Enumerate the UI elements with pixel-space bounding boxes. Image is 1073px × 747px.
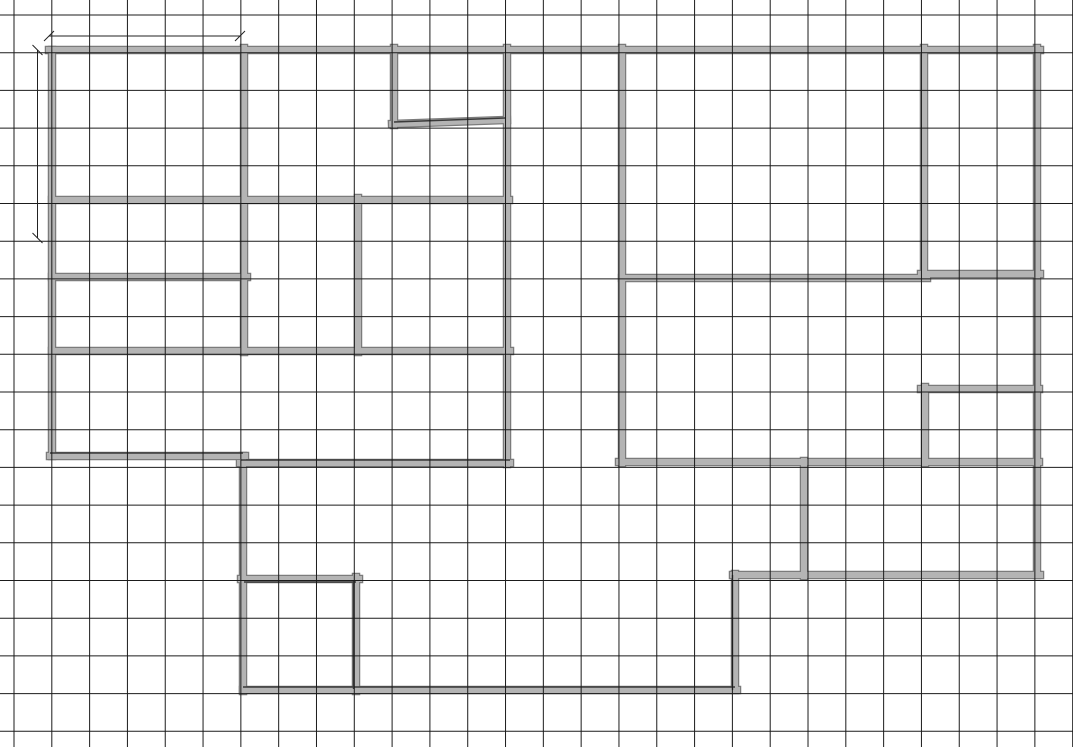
floor-plan-canvas [0,0,1073,747]
floorplan-page [0,0,1073,747]
paper-background [0,0,1073,747]
